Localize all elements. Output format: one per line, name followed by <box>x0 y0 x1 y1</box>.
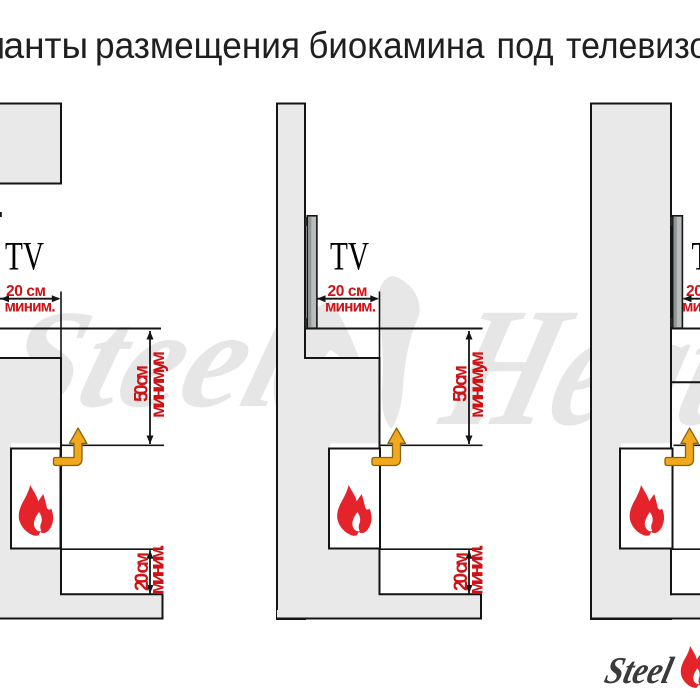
svg-text:миним.: миним. <box>5 299 56 316</box>
svg-text:под: под <box>497 25 554 66</box>
svg-text:20 см: 20 см <box>6 283 46 300</box>
svg-text:20 см: 20 см <box>686 283 700 300</box>
svg-text:TV: TV <box>692 234 700 279</box>
svg-text:TV: TV <box>330 234 369 279</box>
svg-text:анты: анты <box>4 25 89 66</box>
svg-text:TV: TV <box>5 234 44 279</box>
svg-text:20 см: 20 см <box>328 283 368 300</box>
svg-text:Steel: Steel <box>601 651 678 692</box>
svg-text:минимум: минимум <box>467 351 488 418</box>
svg-text:минимум: минимум <box>148 351 169 418</box>
svg-text:миним.: миним. <box>682 299 700 316</box>
svg-text:миним.: миним. <box>325 299 376 316</box>
svg-text:биокамина: биокамина <box>309 25 485 66</box>
svg-text:миним.: миним. <box>148 545 169 595</box>
svg-text:телевизором: телевизором <box>566 25 700 66</box>
svg-text:миним.: миним. <box>467 545 488 595</box>
svg-text:размещения: размещения <box>95 25 300 66</box>
